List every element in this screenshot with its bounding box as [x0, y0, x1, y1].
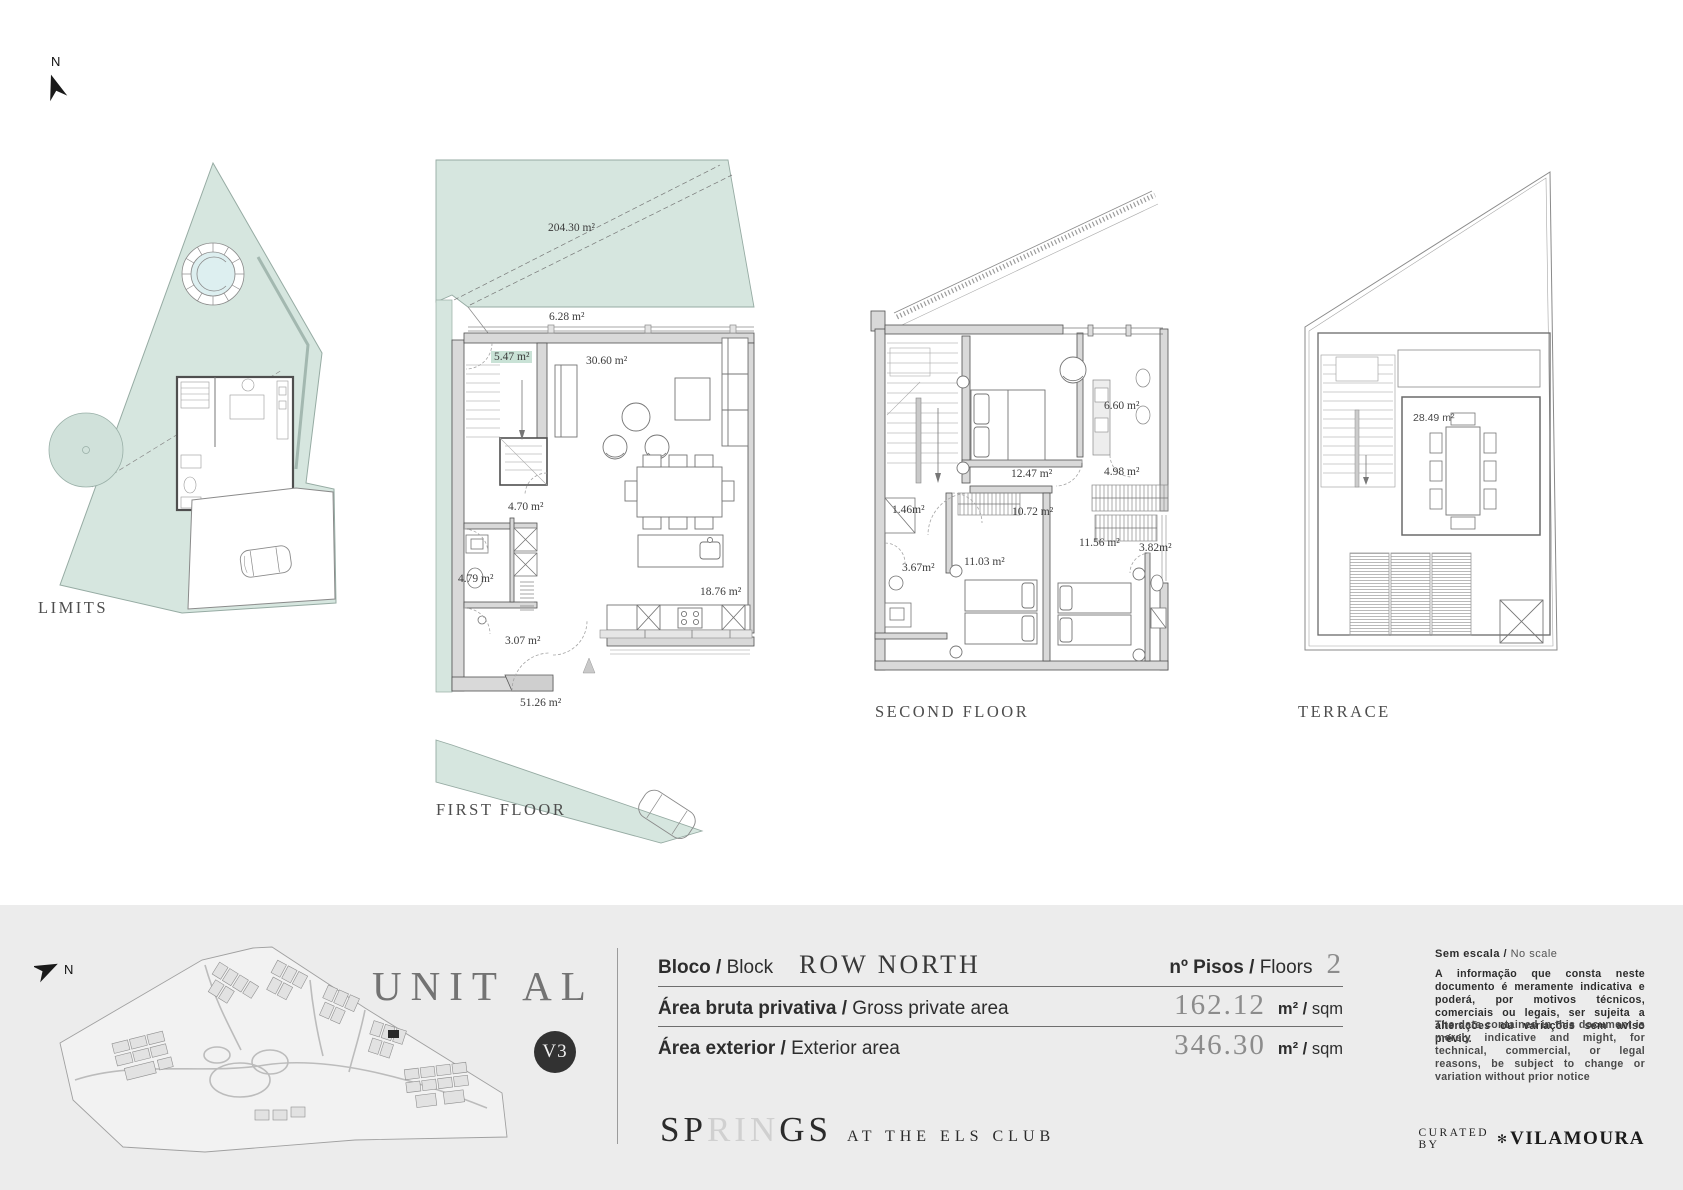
ff-marker-triangle: [583, 658, 595, 673]
sf-master-bedroom: [957, 357, 1086, 474]
ff-stairs: [466, 365, 547, 485]
area-label-closet: 4.98 m²: [1104, 466, 1139, 478]
floorplan-sheet: N: [0, 0, 1683, 1190]
sf-pergola: [894, 191, 1158, 325]
area-label-hall2: 10.72 m²: [1012, 506, 1053, 518]
row-block: Bloco / Block ROW NORTH nº Pisos / Floor…: [658, 948, 1343, 981]
limits-pool: [182, 243, 244, 305]
block-value: ROW NORTH: [799, 950, 981, 980]
sf-bedroom3-beds: [1058, 568, 1145, 661]
ff-top-windows: [468, 325, 754, 333]
north-label-top: N: [51, 54, 60, 69]
sf-bath-top: [1093, 369, 1150, 455]
brand-sp: SP: [660, 1110, 707, 1150]
gross-value: 162.12: [1174, 989, 1266, 1022]
plan-title-second-floor: SECOND FLOOR: [875, 702, 1029, 722]
terrace-skylight: [1500, 600, 1543, 643]
curated-label: CURATED BY: [1419, 1127, 1490, 1151]
north-arrow-icon: [42, 72, 68, 102]
area-label-kitchen: 18.76 m²: [700, 586, 741, 598]
row-exterior-area: Área exterior / Exterior area 346.30 m² …: [658, 1029, 1343, 1062]
gross-unit-pt: m² /: [1278, 1000, 1312, 1019]
terrace-drawing: [1298, 165, 1564, 685]
brand-rin: RIN: [707, 1110, 779, 1150]
exterior-value: 346.30: [1174, 1029, 1266, 1062]
area-label-bedroom-main: 12.47 m²: [1011, 468, 1052, 480]
scale-note-en: No scale: [1511, 948, 1558, 960]
area-label-wardrobe: 11.56 m²: [1079, 537, 1120, 549]
exterior-label-pt: Área exterior /: [658, 1038, 791, 1060]
disclaimer-en: The data contained in this document is m…: [1435, 1019, 1645, 1084]
curated-by: CURATED BY ✻ VILAMOURA: [1435, 1127, 1645, 1151]
area-label-bath-top: 6.60 m²: [1104, 400, 1139, 412]
sf-wardrobes: [958, 485, 1168, 541]
area-label-roof-terrace: 28.49 m²: [1413, 412, 1454, 424]
block-label-pt: Bloco /: [658, 957, 727, 979]
area-label-garden: 204.30 m²: [548, 222, 595, 234]
limits-plan-drawing: [30, 155, 340, 620]
block-label-en: Block: [727, 957, 773, 979]
second-floor-drawing: [858, 163, 1176, 713]
ff-furniture: [555, 338, 748, 567]
plan-title-first-floor: FIRST FLOOR: [436, 800, 566, 820]
exterior-label-en: Exterior area: [791, 1038, 900, 1060]
gross-unit-en: sqm: [1312, 1000, 1343, 1019]
sf-bedroom2-beds: [950, 565, 1037, 658]
terrace-stairs: [1321, 355, 1395, 487]
terrace-outline: [1305, 172, 1557, 650]
floors-label-en: Floors: [1260, 957, 1313, 979]
floors-label-pt: nº Pisos /: [1169, 957, 1259, 979]
exterior-unit-pt: m² /: [1278, 1040, 1312, 1059]
scale-note: Sem escala / No scale: [1435, 944, 1645, 962]
area-label-bedroom-2: 11.03 m²: [964, 556, 1005, 568]
area-label-bath-left: 3.67m²: [902, 562, 935, 574]
area-label-stairs: 5.47 m²: [491, 351, 532, 363]
first-floor-drawing: [430, 150, 760, 850]
floors-value: 2: [1327, 948, 1344, 981]
unit-title: UNIT AL: [372, 962, 595, 1010]
area-label-balcony: 6.28 m²: [549, 311, 584, 323]
vilamoura-brand: VILAMOURA: [1510, 1128, 1645, 1150]
limits-driveway: [188, 488, 335, 609]
gross-label-pt: Área bruta privativa /: [658, 998, 852, 1020]
exterior-unit-en: sqm: [1312, 1040, 1343, 1059]
footer-divider: [617, 948, 618, 1144]
row-gross-area: Área bruta privativa / Gross private are…: [658, 989, 1343, 1022]
plan-title-terrace: TERRACE: [1298, 702, 1391, 722]
plan-title-limits: LIMITS: [38, 598, 108, 618]
area-label-bath-right: 3.82m²: [1139, 542, 1172, 554]
gross-label-en: Gross private area: [852, 998, 1008, 1020]
brand-gs: GS: [779, 1110, 832, 1150]
vilamoura-glyph-icon: ✻: [1497, 1132, 1507, 1146]
rule-1: [658, 986, 1343, 987]
version-badge: V3: [534, 1031, 576, 1073]
limits-tree: [49, 413, 123, 487]
area-label-bath: 4.79 m²: [458, 573, 493, 585]
area-label-patio: 51.26 m²: [520, 697, 561, 709]
area-label-living: 30.60 m²: [586, 355, 627, 367]
unit-location-marker: [388, 1030, 399, 1038]
area-label-landing: 1.46m²: [892, 504, 925, 516]
terrace-solar-panels: [1350, 553, 1471, 635]
area-label-entry: 3.07 m²: [505, 635, 540, 647]
springs-wordmark: SPRINGS AT THE ELS CLUB: [660, 1110, 1055, 1150]
scale-note-pt: Sem escala /: [1435, 948, 1511, 960]
area-label-hall: 4.70 m²: [508, 501, 543, 513]
sf-stairs: [887, 343, 958, 483]
ff-kitchen: [600, 605, 752, 654]
rule-2: [658, 1026, 1343, 1027]
brand-tagline: AT THE ELS CLUB: [847, 1128, 1055, 1146]
